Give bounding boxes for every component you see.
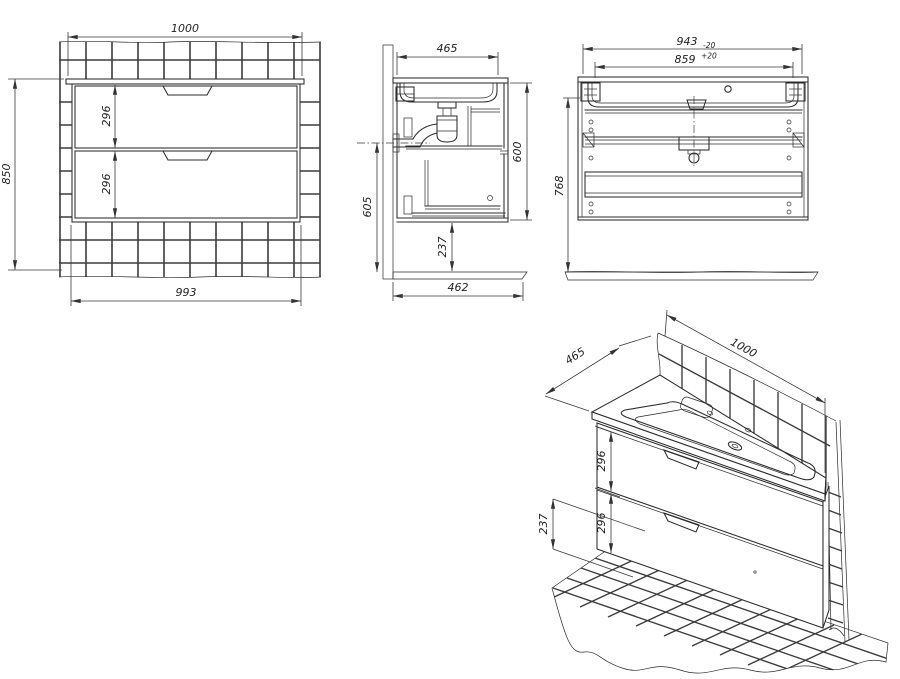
dim-side-height-right: 600 <box>511 142 524 163</box>
front-view: 1000 850 296 296 993 <box>0 22 321 306</box>
dim-back-width-outer-tol: -20 <box>703 41 715 50</box>
dim-front-drawer-lower: 296 <box>100 174 113 195</box>
technical-drawing-canvas: 1000 850 296 296 993 <box>0 0 900 679</box>
vanity-side-section <box>393 78 508 222</box>
dim-back-width-outer: 943 <box>677 35 698 48</box>
countertop-section <box>393 78 508 83</box>
dim-side-floor-clearance: 237 <box>436 237 449 258</box>
dim-side-depth-bottom: 462 <box>448 281 469 294</box>
slide-roller <box>488 196 493 201</box>
isometric-view: 465 1000 296 296 237 <box>537 310 900 679</box>
floor-section <box>393 272 527 279</box>
dim-back-height-left: 768 <box>553 176 566 197</box>
cabinet-right-face-iso <box>823 486 829 628</box>
vanity-front <box>66 79 304 222</box>
dim-front-width-bottom: 993 <box>176 286 197 299</box>
dim-iso-drawer-upper: 296 <box>595 451 608 472</box>
washbasin-bowl-outer <box>400 83 497 102</box>
side-section-view: 465 605 600 237 462 <box>357 42 532 301</box>
wall-bracket-lower <box>404 196 412 214</box>
dim-iso-width: 1000 <box>728 335 759 360</box>
vanity-technical-drawing: 1000 850 296 296 993 <box>0 0 900 679</box>
dim-iso-floor-clearance: 237 <box>537 514 550 535</box>
countertop-front <box>66 79 304 84</box>
dim-side-depth-top: 465 <box>437 42 458 55</box>
wall-section <box>383 45 393 279</box>
dim-back-width-inner: 859 <box>675 53 696 66</box>
drain-flange <box>438 102 456 108</box>
floor-strip-back <box>565 272 818 280</box>
dim-front-drawer-upper: 296 <box>100 106 113 127</box>
siphon-elbow-inner <box>420 133 437 147</box>
washbasin-bowl-inner <box>404 83 493 98</box>
back-view: 943 -20 859 +20 768 <box>553 35 818 280</box>
dim-front-height-left: 850 <box>0 164 13 185</box>
cabinet-body-back <box>578 77 808 220</box>
dim-iso-depth: 465 <box>563 345 588 367</box>
dim-front-width-top: 1000 <box>171 22 199 35</box>
vanity-back <box>578 77 808 220</box>
siphon-elbow-outer <box>413 124 437 139</box>
dim-back-width-inner-tol: +20 <box>701 52 717 61</box>
wall-bracket-upper <box>404 118 412 137</box>
dim-side-height-left: 605 <box>361 197 374 218</box>
